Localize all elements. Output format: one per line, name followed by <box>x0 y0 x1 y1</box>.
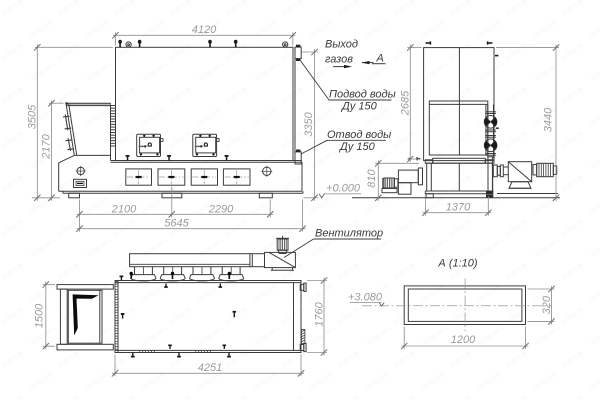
svg-text:810: 810 <box>366 168 378 187</box>
svg-text:2290: 2290 <box>208 203 234 215</box>
svg-text:4120: 4120 <box>192 24 217 36</box>
svg-text:А (1:10): А (1:10) <box>437 258 477 270</box>
svg-text:газов: газов <box>325 54 353 66</box>
svg-text:1200: 1200 <box>451 334 476 346</box>
svg-text:3440: 3440 <box>543 107 555 132</box>
svg-text:1760: 1760 <box>314 301 326 326</box>
svg-text:А: А <box>376 53 384 65</box>
svg-text:2685: 2685 <box>399 90 411 116</box>
svg-text:Ду 150: Ду 150 <box>338 141 376 153</box>
svg-text:Отвод воды: Отвод воды <box>327 129 391 141</box>
svg-text:2100: 2100 <box>111 203 137 215</box>
svg-text:Выход: Выход <box>325 39 358 51</box>
svg-text:Подвод воды: Подвод воды <box>329 89 396 101</box>
svg-text:+0.000: +0.000 <box>326 183 361 195</box>
svg-text:1370: 1370 <box>446 201 471 213</box>
svg-text:3350: 3350 <box>303 111 315 136</box>
svg-text:Ду 150: Ду 150 <box>340 101 378 113</box>
svg-text:2170: 2170 <box>40 133 52 159</box>
svg-text:1500: 1500 <box>33 303 45 328</box>
svg-text:320: 320 <box>541 295 553 314</box>
svg-text:3505: 3505 <box>26 104 38 129</box>
svg-text:5645: 5645 <box>164 218 189 230</box>
svg-text:4251: 4251 <box>198 362 222 374</box>
svg-text:Вентилятор: Вентилятор <box>315 228 383 240</box>
svg-text:+3.080: +3.080 <box>348 292 383 304</box>
